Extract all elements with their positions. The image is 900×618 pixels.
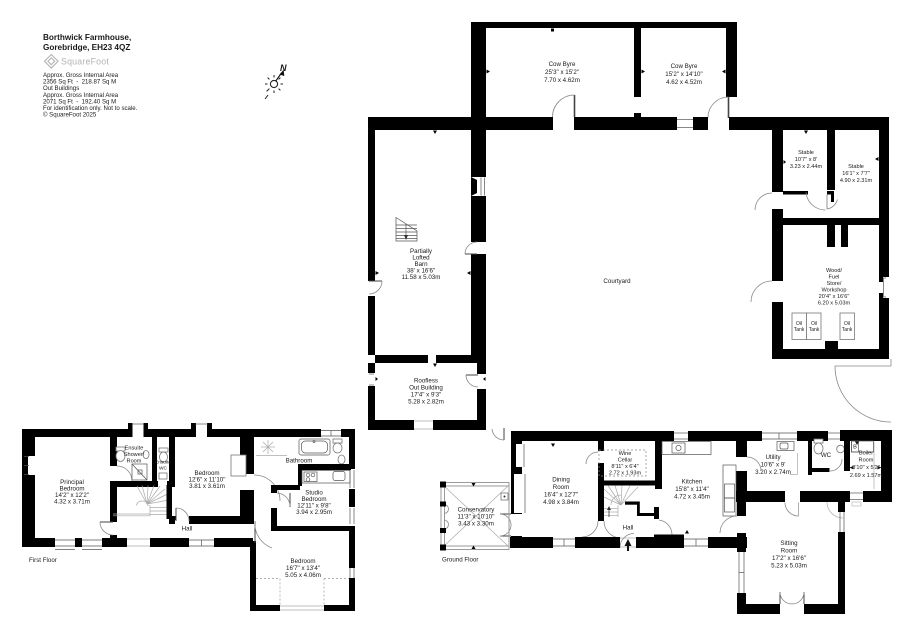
svg-text:Tank: Tank bbox=[794, 327, 805, 333]
svg-text:Tank: Tank bbox=[842, 327, 853, 333]
svg-text:4.72 x 3.45m: 4.72 x 3.45m bbox=[674, 494, 710, 501]
svg-text:2.69 x 1.57m: 2.69 x 1.57m bbox=[850, 473, 883, 479]
svg-text:Tank: Tank bbox=[809, 327, 820, 333]
svg-text:B: B bbox=[853, 445, 857, 451]
svg-text:Stable: Stable bbox=[798, 150, 814, 156]
svg-text:WC: WC bbox=[159, 466, 168, 472]
svg-text:Sitting: Sitting bbox=[780, 540, 798, 547]
svg-text:Cellar: Cellar bbox=[618, 458, 633, 464]
svg-text:7.70 x 4.62m: 7.70 x 4.62m bbox=[544, 77, 580, 84]
svg-text:Wood/: Wood/ bbox=[826, 268, 843, 274]
svg-text:Out Building: Out Building bbox=[409, 385, 443, 392]
svg-text:4.62 x 4.52m: 4.62 x 4.52m bbox=[666, 79, 702, 86]
svg-text:4.32 x 3.71m: 4.32 x 3.71m bbox=[54, 499, 90, 506]
svg-text:3.43 x 3.30m: 3.43 x 3.30m bbox=[458, 521, 494, 528]
svg-text:Borthwick Farmhouse,: Borthwick Farmhouse, bbox=[43, 33, 131, 42]
svg-text:Bedroom: Bedroom bbox=[290, 558, 315, 565]
svg-text:Fuel: Fuel bbox=[829, 275, 840, 281]
svg-text:Bathroom: Bathroom bbox=[286, 458, 313, 465]
svg-text:2.72 x 1.93m: 2.72 x 1.93m bbox=[609, 471, 642, 477]
svg-text:WC: WC bbox=[821, 452, 832, 459]
svg-text:Courtyard: Courtyard bbox=[603, 278, 631, 285]
svg-text:Room: Room bbox=[127, 459, 142, 465]
svg-text:17'2" x 16'6": 17'2" x 16'6" bbox=[772, 555, 806, 562]
svg-text:Boiler: Boiler bbox=[859, 451, 873, 457]
svg-text:10'6" x 9': 10'6" x 9' bbox=[761, 462, 786, 469]
svg-text:Gorebridge, EH23 4QZ: Gorebridge, EH23 4QZ bbox=[43, 43, 130, 52]
svg-text:Hall: Hall bbox=[623, 525, 634, 532]
svg-text:11'3" x 10'10": 11'3" x 10'10" bbox=[458, 514, 495, 521]
svg-text:15'8" x 11'4": 15'8" x 11'4" bbox=[675, 486, 708, 493]
svg-text:3.94 x 2.95m: 3.94 x 2.95m bbox=[296, 509, 332, 516]
svg-text:5.05 x 4.06m: 5.05 x 4.06m bbox=[285, 572, 321, 579]
svg-text:6.20 x 5.03m: 6.20 x 5.03m bbox=[818, 301, 851, 307]
svg-text:Ensuite: Ensuite bbox=[125, 446, 144, 452]
svg-text:SquareFoot: SquareFoot bbox=[61, 57, 109, 67]
svg-text:17'4" x 9'3": 17'4" x 9'3" bbox=[411, 392, 442, 399]
svg-text:Cow Byre: Cow Byre bbox=[549, 61, 576, 68]
svg-text:Ensuite: Ensuite bbox=[155, 460, 171, 466]
svg-text:16'7" x 13'4": 16'7" x 13'4" bbox=[286, 565, 320, 572]
svg-text:Workshop: Workshop bbox=[821, 288, 846, 294]
svg-text:Wine: Wine bbox=[619, 451, 632, 457]
svg-text:4.98 x 3.84m: 4.98 x 3.84m bbox=[543, 499, 579, 506]
svg-text:3.23 x 2.44m: 3.23 x 2.44m bbox=[790, 164, 823, 170]
svg-text:Room: Room bbox=[859, 458, 874, 464]
svg-text:11.58 x 5.03m: 11.58 x 5.03m bbox=[402, 274, 441, 281]
svg-text:Store/: Store/ bbox=[827, 281, 842, 287]
svg-text:Kitchen: Kitchen bbox=[682, 479, 703, 486]
svg-text:Room: Room bbox=[553, 484, 570, 491]
svg-text:© SquareFoot 2025: © SquareFoot 2025 bbox=[43, 112, 97, 119]
svg-text:8'11" x 6'4": 8'11" x 6'4" bbox=[611, 464, 638, 470]
svg-text:Hall: Hall bbox=[182, 526, 193, 533]
svg-text:Room: Room bbox=[781, 548, 798, 555]
svg-text:Dining: Dining bbox=[552, 477, 570, 484]
svg-text:N: N bbox=[280, 63, 287, 73]
svg-text:5.28 x 2.82m: 5.28 x 2.82m bbox=[408, 399, 444, 406]
svg-text:Roofless: Roofless bbox=[414, 378, 438, 385]
svg-text:5.23 x 5.03m: 5.23 x 5.03m bbox=[771, 563, 807, 570]
svg-text:25'3" x 15'2": 25'3" x 15'2" bbox=[545, 69, 579, 76]
svg-text:Cow Byre: Cow Byre bbox=[671, 63, 698, 70]
svg-text:10'7" x 8': 10'7" x 8' bbox=[795, 157, 817, 163]
svg-text:16'4" x 12'7": 16'4" x 12'7" bbox=[544, 492, 578, 499]
svg-text:8'10" x 5'2": 8'10" x 5'2" bbox=[852, 465, 880, 471]
svg-text:Shower/: Shower/ bbox=[124, 452, 145, 458]
svg-text:3.81 x 3.61m: 3.81 x 3.61m bbox=[189, 483, 225, 490]
svg-text:4.90 x 2.31m: 4.90 x 2.31m bbox=[840, 178, 873, 184]
svg-text:Conservatory: Conservatory bbox=[458, 507, 496, 514]
svg-text:16'1" x 7'7": 16'1" x 7'7" bbox=[842, 171, 870, 177]
svg-text:Utility: Utility bbox=[765, 454, 781, 461]
svg-text:First Floor: First Floor bbox=[29, 557, 57, 564]
svg-text:Stable: Stable bbox=[848, 164, 864, 170]
svg-text:3.20 x 2.74m: 3.20 x 2.74m bbox=[755, 469, 791, 476]
svg-text:20'4" x 16'6": 20'4" x 16'6" bbox=[819, 294, 850, 300]
svg-text:Ground Floor: Ground Floor bbox=[442, 557, 478, 564]
svg-text:15'2" x 14'10": 15'2" x 14'10" bbox=[665, 71, 702, 78]
